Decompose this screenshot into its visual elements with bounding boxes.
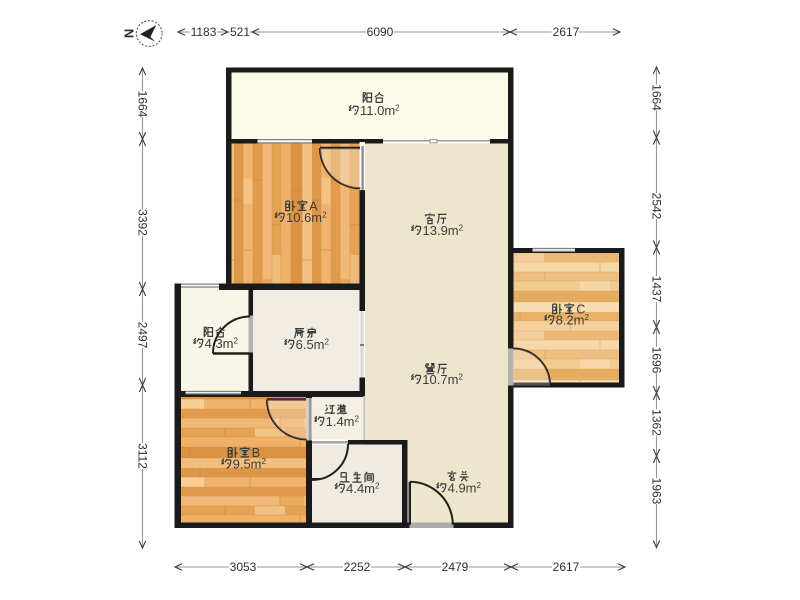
svg-text:4.9m2: 4.9m2: [448, 481, 482, 496]
svg-text:8.2m2: 8.2m2: [556, 313, 590, 328]
svg-text:9.5m2: 9.5m2: [233, 457, 267, 472]
svg-text:1.4m2: 1.4m2: [326, 414, 360, 429]
svg-text:N: N: [122, 29, 137, 38]
svg-text:10.6m2: 10.6m2: [286, 210, 327, 225]
svg-text:10.7m2: 10.7m2: [422, 372, 463, 387]
svg-text:6090: 6090: [367, 25, 394, 39]
svg-text:3112: 3112: [135, 443, 149, 469]
svg-text:521: 521: [230, 25, 250, 39]
svg-text:2252: 2252: [344, 560, 371, 574]
svg-text:11.0m2: 11.0m2: [360, 103, 400, 118]
svg-text:2617: 2617: [553, 560, 580, 574]
svg-text:3392: 3392: [135, 209, 149, 236]
svg-text:2479: 2479: [442, 560, 469, 574]
svg-text:2617: 2617: [553, 25, 580, 39]
svg-text:2497: 2497: [135, 322, 149, 349]
svg-text:1362: 1362: [649, 409, 663, 436]
svg-text:1963: 1963: [649, 478, 663, 505]
svg-text:1664: 1664: [135, 91, 149, 118]
svg-text:2542: 2542: [649, 193, 663, 220]
svg-text:1183: 1183: [191, 25, 217, 39]
svg-text:6.5m2: 6.5m2: [296, 337, 330, 352]
svg-text:1664: 1664: [649, 84, 663, 111]
svg-text:1437: 1437: [649, 276, 663, 303]
svg-text:13.9m2: 13.9m2: [423, 223, 464, 238]
svg-text:1696: 1696: [649, 347, 663, 374]
svg-text:3053: 3053: [230, 560, 257, 574]
svg-text:4.4m2: 4.4m2: [346, 481, 380, 496]
svg-text:4.3m2: 4.3m2: [205, 336, 239, 351]
